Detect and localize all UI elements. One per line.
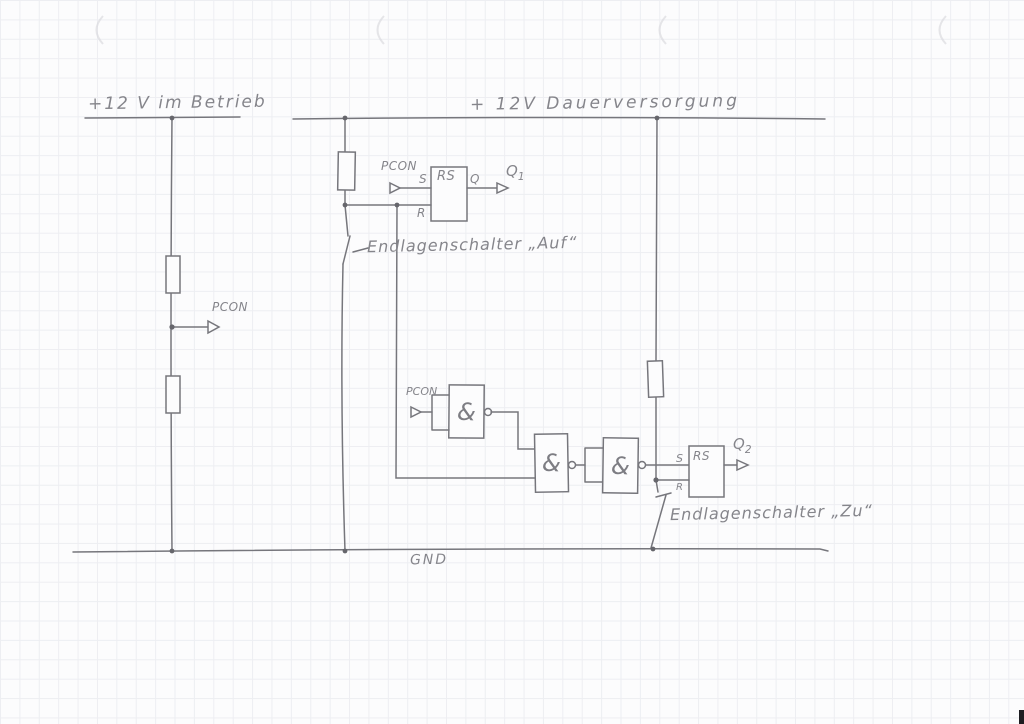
ff2-output-wire [724,460,748,470]
pcon-tap-label: PCON [212,301,248,313]
limit-switch-zu [651,480,671,548]
limit-switch-zu-label: Endlagenschalter „Zu“ [670,503,873,523]
ff1-q-label: Q [470,173,480,185]
nand2-symbol: & [534,433,570,493]
right-supply-rail [293,118,825,120]
q2-output-label: Q2 [733,437,752,456]
schematic-page: +12 V im Betrieb + 12V Dauerversorgung P… [0,0,1024,724]
page-curl-marks [97,16,947,44]
nand1-symbol: & [448,384,486,439]
limit-switch-auf-label: Endlagenschalter „Auf“ [367,235,578,255]
nand2-to-nand3-wire [576,448,603,482]
nand1-input-wires [411,395,449,430]
scan-corner-artifact [1019,710,1024,724]
nand1-pcon-label: PCON [406,386,437,397]
resistor-middle [338,152,356,190]
resistor-divider-bottom [166,376,180,413]
resistor-divider-top [166,256,180,293]
left-supply-label: +12 V im Betrieb [88,94,267,113]
junction-dots [169,116,659,554]
left-supply-rail [85,117,240,118]
right-branch-wire [656,118,657,480]
divider-branch-wire [171,118,172,551]
ff2-s-label: S [676,453,683,464]
q2-letter: Q [733,435,745,453]
ff1-s-label: S [419,173,427,185]
ff1-type-label: RS [437,170,455,183]
pcon-tap-wire [172,321,219,333]
q1-subscript: 1 [518,171,525,183]
ff1-pcon-label: PCON [381,160,417,172]
limit-switch-auf [342,205,368,551]
ground-rail [73,549,828,552]
q2-subscript: 2 [745,444,752,456]
nand3-symbol: & [602,437,640,494]
ff2-r-label: R [676,483,683,493]
q1-letter: Q [506,162,518,180]
ff1-r-label: R [417,207,426,219]
right-supply-label: + 12V Dauerversorgung [470,93,740,114]
nand1-to-nand2-wire [491,412,535,449]
q1-output-label: Q1 [506,164,525,183]
resistor-right [647,361,663,398]
ff2-type-label: RS [693,450,710,462]
ground-label: GND [410,553,448,568]
